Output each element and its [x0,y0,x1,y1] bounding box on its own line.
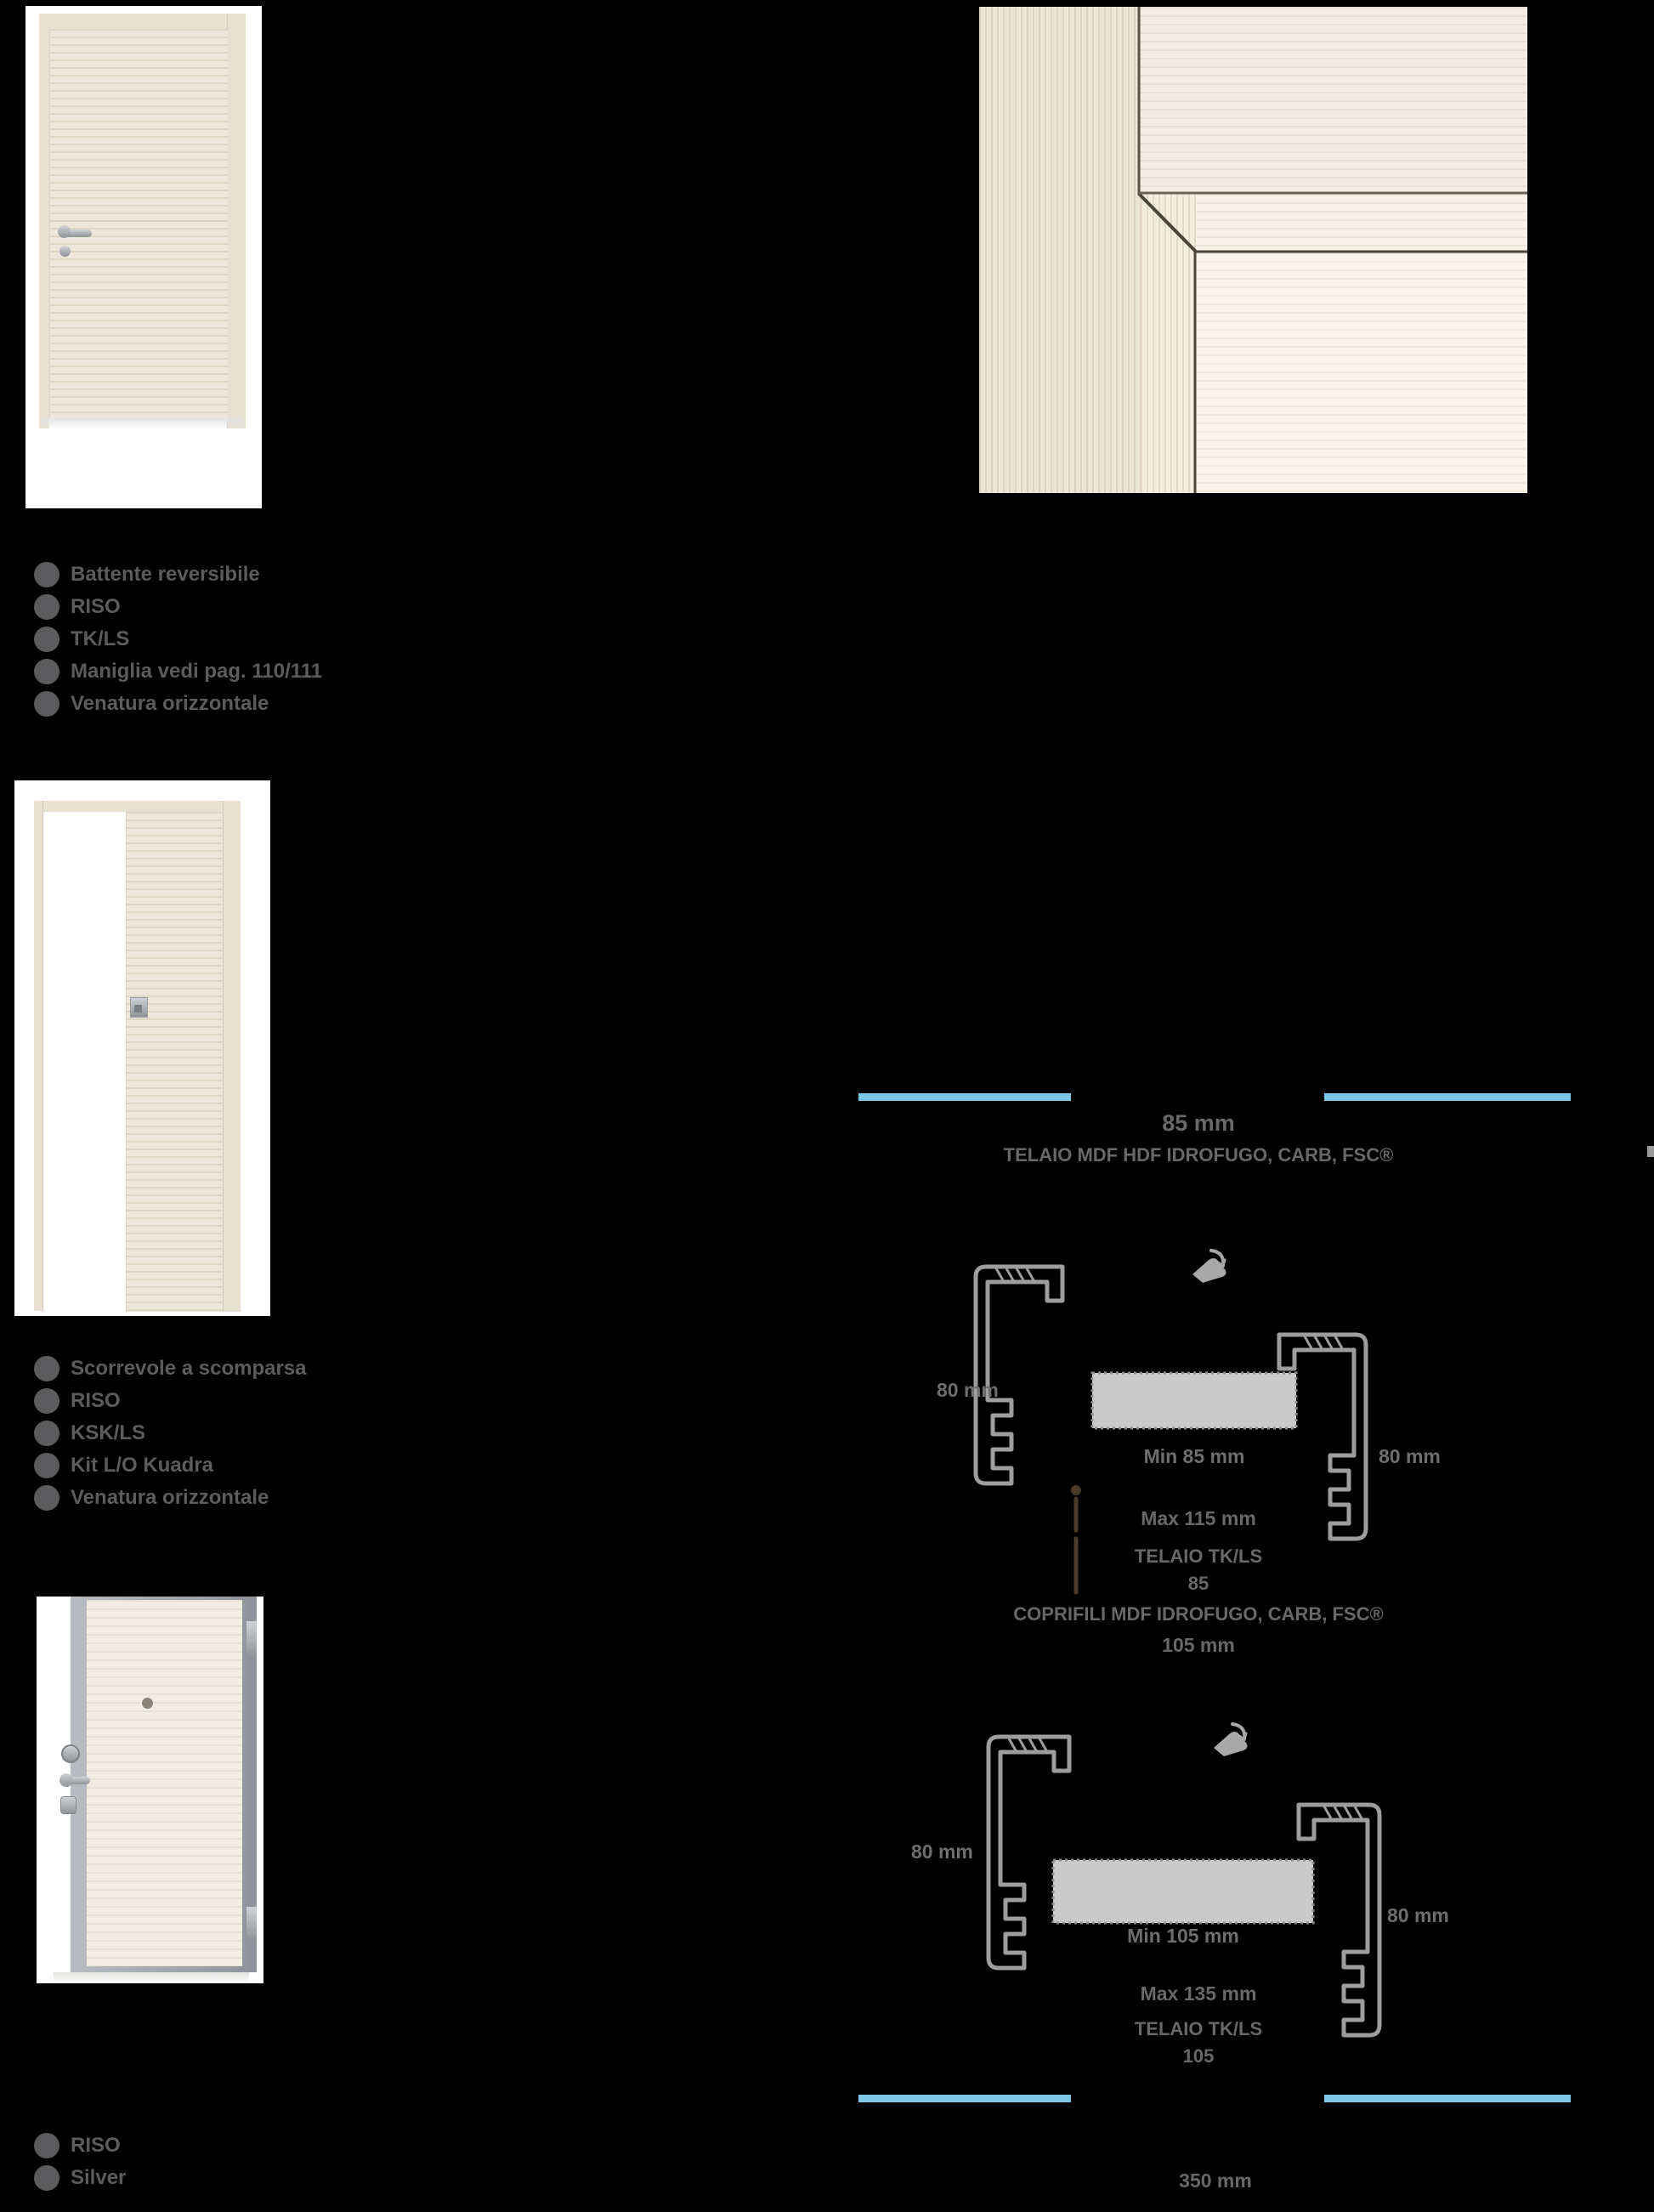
left-jamb-profile [976,1267,1062,1483]
pocket-frame-top [34,801,224,812]
bullet-label: Maniglia vedi pag. 110/111 [71,661,322,682]
bullet-label: Venatura orizzontale [71,1488,269,1508]
dim-left-2: 80 mm [911,1840,973,1863]
hinge-top-icon [246,1621,257,1658]
bullet-icon [34,1388,59,1414]
frame-name-2: TELAIO TK/LS [850,2018,1547,2040]
frame-thickness-title: 85 mm [850,1110,1547,1137]
floor-shadow [54,1972,249,1983]
bullet-label: RISO [71,1391,121,1411]
bullet-label: Venatura orizzontale [71,694,269,714]
bullet-label: Scorrevole a scomparsa [71,1358,307,1379]
pocket-frame-left [34,801,43,1311]
bullet-icon [34,691,59,717]
list-item: Battente reversibile [34,564,322,585]
wall-min-1: Min 85 mm [1092,1445,1296,1468]
bullet-icon [34,2133,59,2158]
dim-right-2: 80 mm [1387,1904,1449,1927]
list-item: RISO [34,1391,307,1411]
feature-list-sliding: Scorrevole a scomparsa RISO KSK/LS Kit L… [34,1358,307,1520]
door-photo-security [37,1597,263,1983]
list-item: Venatura orizzontale [34,1488,307,1508]
list-item: Kit L/O Kuadra [34,1455,307,1476]
list-item: Scorrevole a scomparsa [34,1358,307,1379]
pocket-frame-right [223,801,241,1312]
sliding-leaf [126,812,224,1312]
door-frame-top [39,14,245,29]
bullet-icon [34,1421,59,1446]
page-edge-marker [1647,1146,1654,1157]
corner-joint-lines [979,7,1527,493]
bullet-icon [34,659,59,684]
floor-shadow [41,418,243,429]
security-handle-rose [59,1773,73,1787]
left-profile-hatching [996,1268,1034,1280]
right-profile-hatching [1324,1806,1362,1818]
list-item: Silver [34,2168,126,2188]
accent-bar-top-left [858,1093,1071,1101]
flush-pull-icon [130,997,148,1018]
feature-list-security: RISO Silver [34,2135,126,2200]
catalog-page: Battente reversibile RISO TK/LS Maniglia… [0,0,1654,2212]
bullet-icon [34,1356,59,1381]
casing-spec: COPRIFILI MDF IDROFUGO, CARB, FSC® [850,1603,1547,1625]
door-photo-hinged [25,6,262,508]
hinge-bottom-icon [246,1907,257,1941]
door-groove [50,220,227,222]
dim-right-1: 80 mm [1379,1445,1441,1468]
wall-max-1: Max 115 mm [850,1507,1547,1530]
bullet-icon [34,1453,59,1478]
list-item: TK/LS [34,629,322,649]
door-leaf [49,29,228,418]
bullet-label: Kit L/O Kuadra [71,1455,213,1476]
bullet-label: RISO [71,2135,121,2156]
footer-dimension: 350 mm [867,2169,1564,2192]
bullet-icon [34,627,59,652]
keyhole-escutcheon [59,246,71,257]
upper-lock-icon [61,1744,80,1763]
accent-bar-bottom-right [1324,2095,1571,2102]
left-profile-hatching [1009,1738,1046,1750]
bullet-icon [34,594,59,620]
cylinder-lock-icon [60,1796,76,1814]
frame-spec-title: TELAIO MDF HDF IDROFUGO, CARB, FSC® [850,1144,1547,1166]
dim-left-1: 80 mm [937,1379,999,1402]
bullet-label: KSK/LS [71,1423,145,1443]
door-photo-sliding [14,780,270,1316]
bullet-icon [34,1485,59,1511]
accent-bar-top-right [1324,1093,1571,1101]
list-item: Maniglia vedi pag. 110/111 [34,661,322,682]
bullet-icon [34,562,59,587]
wall-section [1053,1860,1313,1923]
wall-min-2: Min 105 mm [1081,1925,1285,1948]
accent-bar-bottom-left [858,2095,1071,2102]
casing-size: 105 mm [850,1634,1547,1657]
door-frame-right [227,14,246,428]
wall-section [1092,1373,1296,1428]
security-leaf [87,1600,242,1966]
wall-max-2: Max 135 mm [850,1982,1547,2005]
left-jamb-profile [988,1737,1069,1968]
frame-size-2: 105 [850,2045,1547,2067]
peephole-icon [142,1698,153,1709]
frame-size-1: 85 [850,1573,1547,1595]
bullet-icon [34,2165,59,2191]
adjust-tool-icon [1192,1251,1226,1283]
list-item: RISO [34,2135,126,2156]
right-profile-hatching [1305,1336,1342,1348]
list-item: Venatura orizzontale [34,694,322,714]
list-item: KSK/LS [34,1423,307,1443]
handle-rose [58,225,71,238]
list-item: RISO [34,597,322,617]
door-frame-left [39,14,49,428]
flush-pull-recess [134,1005,142,1012]
bullet-label: Silver [71,2168,126,2188]
bullet-label: TK/LS [71,629,129,649]
adjust-tool-icon [1214,1724,1247,1756]
bullet-label: Battente reversibile [71,564,260,585]
frame-corner-detail-photo [979,7,1527,493]
frame-name-1: TELAIO TK/LS [850,1546,1547,1568]
bullet-label: RISO [71,597,121,617]
feature-list-hinged: Battente reversibile RISO TK/LS Maniglia… [34,564,322,726]
